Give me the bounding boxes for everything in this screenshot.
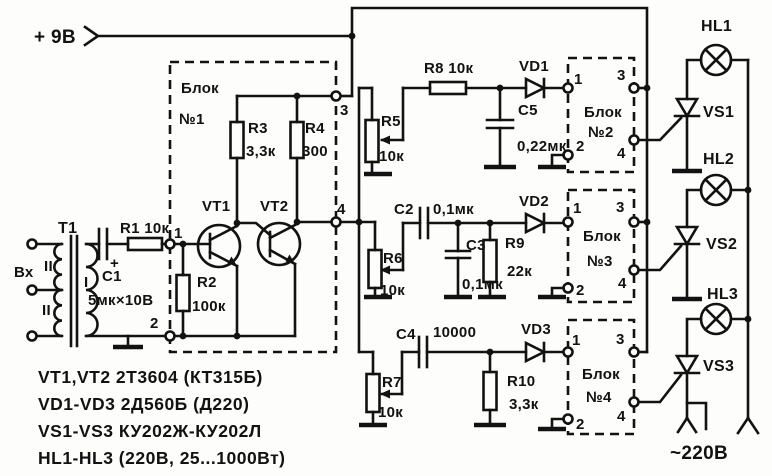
vt2-ref: VT2 xyxy=(260,198,288,215)
block3-title: Блок xyxy=(583,228,621,245)
resistor-r2 xyxy=(177,275,190,311)
schematic-page: + 9В Т1 Вх II I II С1 5мк×10В + R1 10к 1… xyxy=(0,0,772,476)
block2-pin1: 1 xyxy=(574,71,583,88)
thyristor-vs2 xyxy=(672,227,702,299)
r8-label: R8 10к xyxy=(424,60,474,77)
r5-value: 10к xyxy=(379,148,404,165)
block1-pin3: 3 xyxy=(340,102,349,119)
legend-line-4: HL1-HL3 (220В, 25...1000Вт) xyxy=(38,448,286,468)
c5-ref: С5 xyxy=(518,102,538,119)
resistor-r1 xyxy=(128,238,166,250)
vs1-ref: VS1 xyxy=(703,104,734,121)
mains-bus xyxy=(738,60,758,433)
vs3-ref: VS3 xyxy=(703,358,734,375)
block3-pin1: 1 xyxy=(573,200,582,217)
vd2-ref: VD2 xyxy=(519,193,549,210)
block2-number: №2 xyxy=(588,124,614,141)
block2-pin2: 2 xyxy=(576,138,585,155)
c4-value: 10000 xyxy=(433,324,476,341)
block4-pin4: 4 xyxy=(617,408,626,425)
r4-ref: R4 xyxy=(305,120,325,137)
hl1-ref: HL1 xyxy=(701,18,732,35)
c4-ref: С4 xyxy=(396,326,416,343)
r9-ref: R9 xyxy=(505,235,525,252)
block1-pin4: 4 xyxy=(337,201,346,218)
r7-ref: R7 xyxy=(382,374,402,391)
c2-ref: С2 xyxy=(394,201,414,218)
block2-pin4: 4 xyxy=(617,145,626,162)
circuit-schematic: + 9В Т1 Вх II I II С1 5мк×10В + R1 10к 1… xyxy=(0,0,772,476)
thyristor-vs1-icon xyxy=(677,99,697,116)
thyristor-vs1 xyxy=(672,99,702,171)
vd3-ref: VD3 xyxy=(521,321,551,338)
r6-value: 10к xyxy=(380,282,405,299)
resistor-r10 xyxy=(484,372,497,410)
block3-box xyxy=(538,190,681,302)
block3-pin4: 4 xyxy=(618,275,627,292)
r5-ref: R5 xyxy=(381,113,401,130)
thyristor-vs3-icon xyxy=(677,356,697,373)
legend-line-3: VS1-VS3 КУ202Ж-КУ202Л xyxy=(38,421,262,441)
r4-value: 300 xyxy=(302,143,328,160)
thyristor-vs2-icon xyxy=(677,227,697,244)
block1-number: №1 xyxy=(179,111,205,128)
block3-pin2: 2 xyxy=(576,282,585,299)
winding-bottom-label: II xyxy=(42,302,51,319)
lamp-hl3 xyxy=(687,304,748,356)
block2-pin3: 3 xyxy=(617,67,626,84)
c2-value: 0,1мк xyxy=(433,201,474,218)
r6-ref: R6 xyxy=(383,250,403,267)
winding-top-label: II xyxy=(44,258,53,275)
block4-pin2: 2 xyxy=(576,416,585,433)
block2-title: Блок xyxy=(584,104,622,121)
block4-pin1: 1 xyxy=(572,332,581,349)
resistor-r8 xyxy=(430,82,466,94)
r10-value: 3,3к xyxy=(509,396,539,413)
resistor-r3 xyxy=(231,122,244,158)
r7-value: 10к xyxy=(378,404,403,421)
legend-line-2: VD1-VD3 2Д560Б (Д220) xyxy=(38,394,249,414)
r10-ref: R10 xyxy=(507,373,535,390)
hl3-ref: HL3 xyxy=(707,286,738,303)
transformer-ref: Т1 xyxy=(58,220,77,237)
mains-label: ~220В xyxy=(670,443,728,464)
r1-label: R1 10к xyxy=(120,220,170,237)
block4-pin3: 3 xyxy=(616,331,625,348)
block3-pin3: 3 xyxy=(616,199,625,216)
r9-value: 22к xyxy=(507,263,532,280)
block4-title: Блок xyxy=(582,366,620,383)
vs2-ref: VS2 xyxy=(706,236,737,253)
lamp-hl2 xyxy=(687,175,748,227)
block3-number: №3 xyxy=(587,253,613,270)
block4-number: №4 xyxy=(586,389,612,406)
power-rails xyxy=(85,8,647,352)
c3-value: 0,1мк xyxy=(462,276,503,293)
hl2-ref: HL2 xyxy=(703,151,734,168)
r3-ref: R3 xyxy=(248,120,268,137)
winding-secondary-label: I xyxy=(84,274,88,291)
power-label: + 9В xyxy=(34,27,76,48)
input-label: Вх xyxy=(14,264,34,281)
c1-value: 5мк×10В xyxy=(88,292,153,309)
transistor-vt2-icon xyxy=(258,223,300,265)
diode-vd1-icon xyxy=(526,79,544,97)
c5-value: 0,22мк xyxy=(517,138,567,155)
diode-vd3-icon xyxy=(526,343,544,361)
r2-value: 100к xyxy=(192,298,226,315)
legend-line-1: VT1,VT2 2Т3604 (КТ315Б) xyxy=(38,367,263,387)
lamp-hl1 xyxy=(687,45,748,99)
thyristor-vs3 xyxy=(675,356,706,432)
block1-pin2: 2 xyxy=(150,315,159,332)
c1-polarity: + xyxy=(110,255,119,272)
channel3-filter xyxy=(402,337,564,425)
vt1-ref: VT1 xyxy=(202,198,230,215)
c3-ref: С3 xyxy=(466,237,486,254)
block1-pin1: 1 xyxy=(174,225,183,242)
vd1-ref: VD1 xyxy=(519,58,549,75)
r3-value: 3,3к xyxy=(246,143,276,160)
r2-ref: R2 xyxy=(197,274,217,291)
diode-vd2-icon xyxy=(526,214,544,232)
block1-title: Блок xyxy=(181,80,219,97)
